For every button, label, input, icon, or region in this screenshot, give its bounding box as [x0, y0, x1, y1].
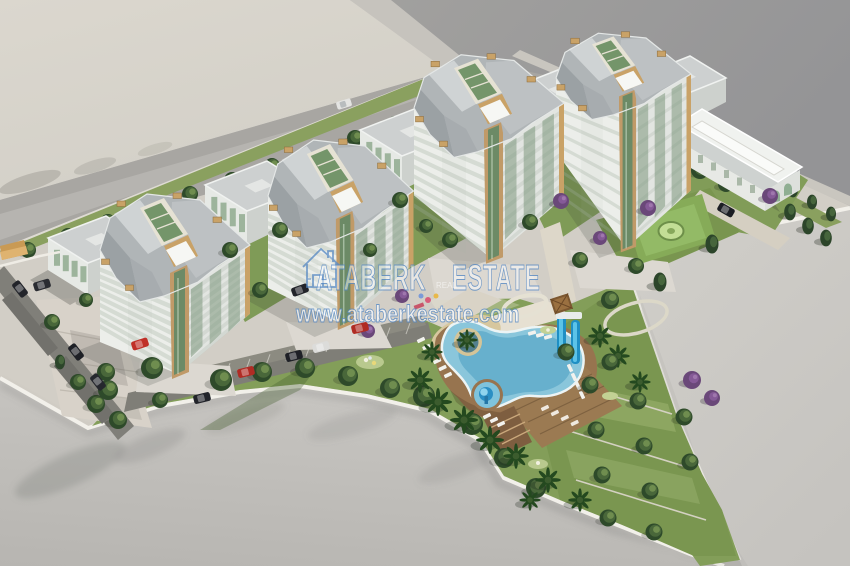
svg-text:ESTATE: ESTATE [452, 259, 540, 299]
svg-text:www.ataberkestate.com: www.ataberkestate.com [295, 300, 519, 327]
svg-text:REAL: REAL [436, 281, 457, 290]
svg-text:ATABERK: ATABERK [316, 259, 426, 299]
